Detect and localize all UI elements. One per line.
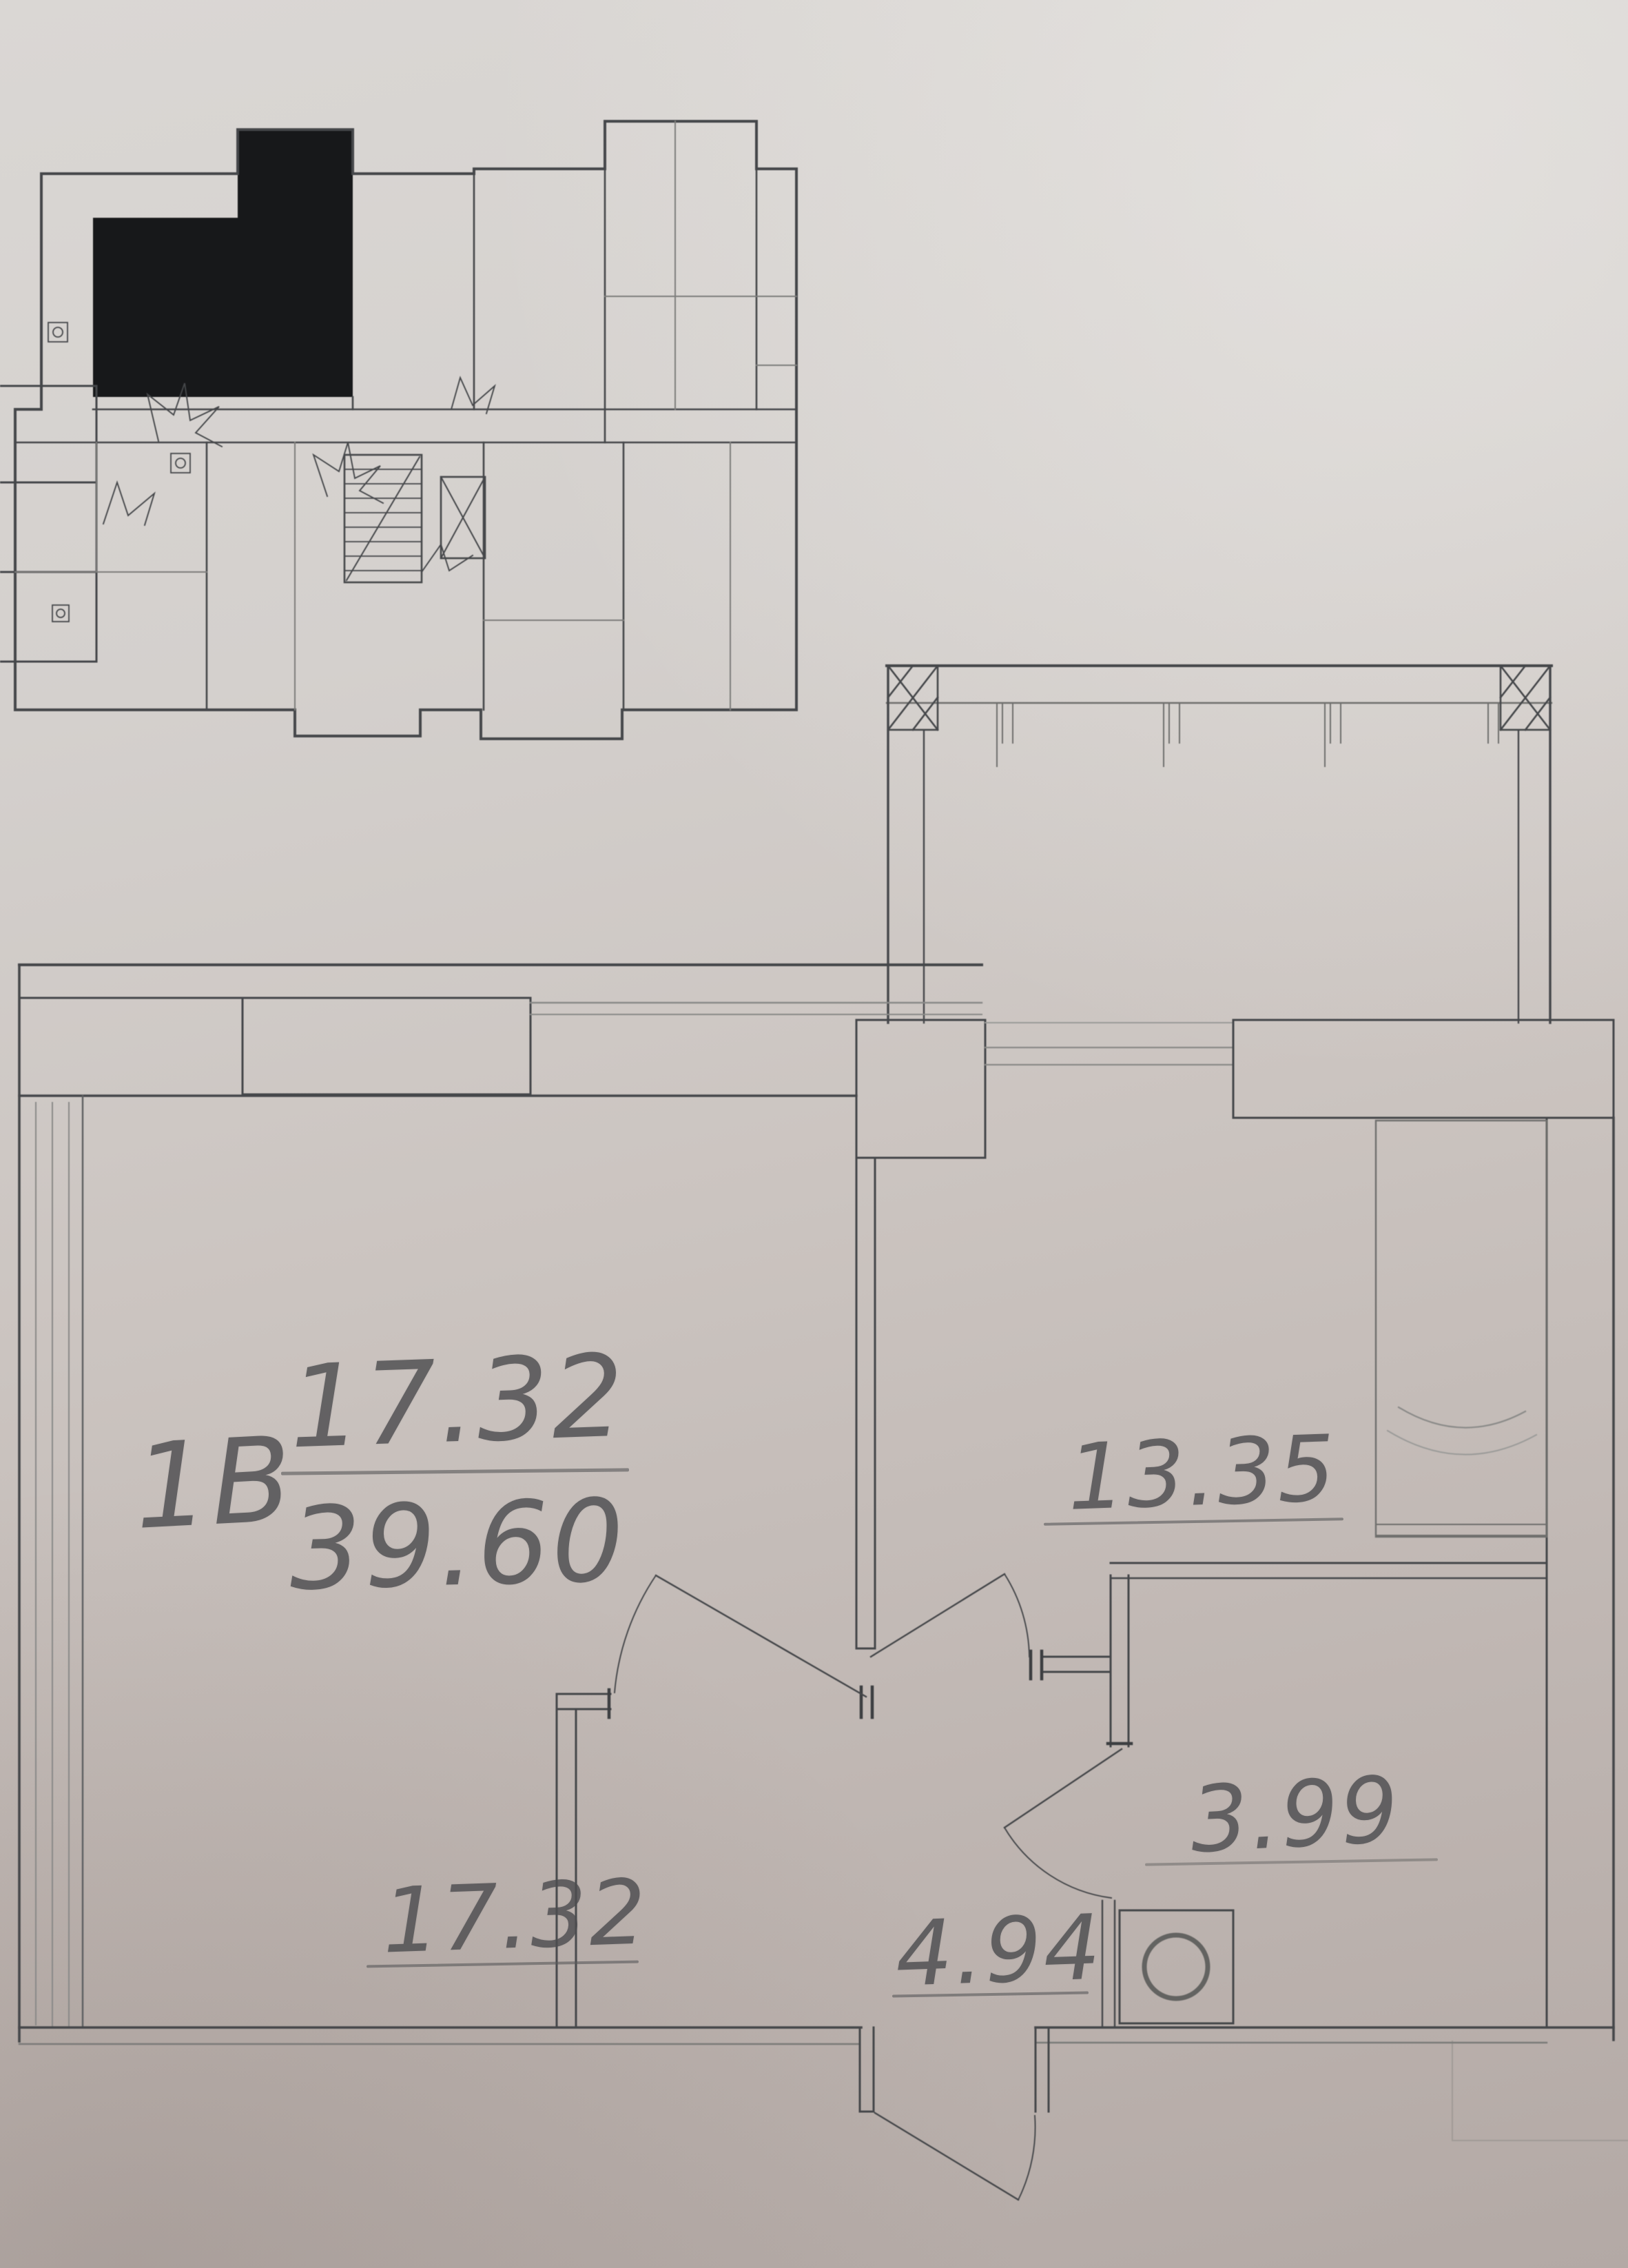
bathroom-area-label: 3.99: [1155, 1763, 1435, 1868]
balcony: [887, 666, 1552, 1023]
stairs-icon: [344, 455, 422, 582]
fixtures: [1120, 1121, 1547, 2023]
floor-plan-drawing: [0, 0, 1628, 2268]
kitchen-area-label: 13.35: [1063, 1423, 1341, 1524]
hatched-corner-post: [1501, 666, 1550, 730]
hatched-corner-post: [888, 666, 938, 730]
exterior-walls: [19, 965, 1628, 2141]
washing-machine-icon: [1120, 1910, 1233, 2023]
area-fraction-denominator: 39.60: [288, 1484, 625, 1607]
door-entrance: [875, 2113, 1035, 2200]
door-swing-icons: [103, 378, 495, 572]
door-living-room: [615, 1575, 866, 1697]
overview-inset: [0, 121, 796, 739]
building-outline: [15, 121, 796, 739]
floor-plan-photo: 1В 17.32 39.60 13.35 3.99 4.94 17.32: [0, 0, 1628, 2268]
window-bay: [243, 998, 530, 1094]
door-bathroom: [1004, 1749, 1122, 1898]
kitchen-sink-icon: [1376, 1121, 1547, 1537]
elevator-icon: [441, 477, 485, 558]
highlighted-unit-fill: [93, 130, 353, 397]
area-fraction-numerator: 17.32: [287, 1340, 625, 1465]
hallway-area-label: 4.94: [894, 1903, 1090, 1999]
doors: [615, 1574, 1122, 2200]
unit-type-label: 1В: [132, 1421, 297, 1546]
living-room-area-label: 17.32: [381, 1867, 646, 1965]
door-kitchen: [871, 1574, 1029, 1657]
